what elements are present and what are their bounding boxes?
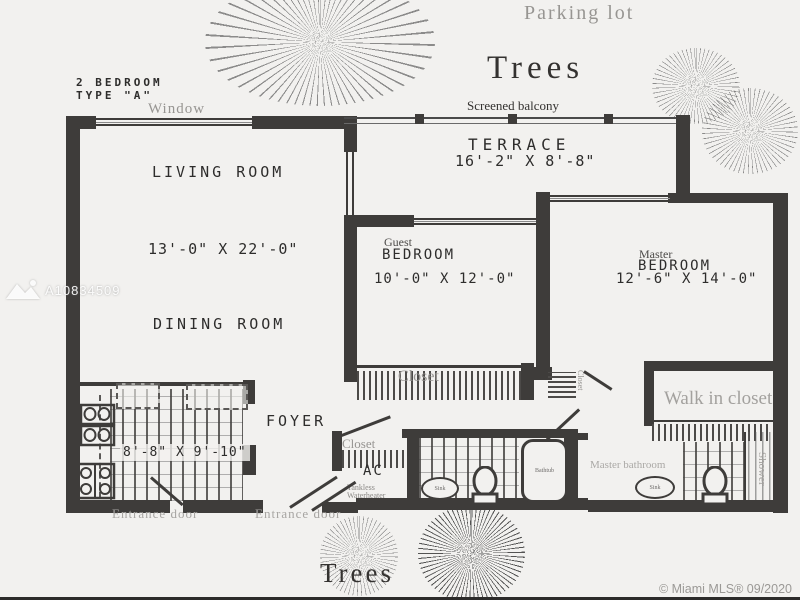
door-swing: [583, 370, 612, 390]
mls-watermark: A10834509: [4, 278, 121, 302]
rail-post: [604, 114, 613, 124]
closet-hanger-hatch: [357, 371, 521, 400]
wall: [668, 193, 788, 203]
wall: [66, 116, 96, 129]
wall: [644, 361, 775, 371]
closet-wall: [650, 420, 773, 422]
guest-bedroom-label: BEDROOM: [382, 247, 455, 263]
screened-balcony-label: Screened balcony: [467, 98, 559, 114]
kitchen-sink-icon: [75, 462, 116, 500]
terrace-dimension: 16'-2" X 8'-8": [455, 152, 595, 170]
ac-label: AC: [363, 463, 384, 479]
mls-logo-icon: [4, 278, 42, 302]
window-symbol: [550, 195, 670, 202]
wall: [644, 369, 654, 426]
shower-partition: [744, 432, 746, 500]
tree-icon: [702, 88, 798, 174]
foyer-label: FOYER: [266, 412, 326, 430]
door-swing: [338, 415, 390, 438]
window-symbol: [96, 118, 252, 126]
tree-icon: [205, 0, 435, 106]
plan-title-line2: TYPE "A": [76, 89, 153, 102]
guest-bedroom-dimension: 10'-0" X 12'-0": [374, 271, 515, 287]
bathtub-icon: Bathtub: [521, 439, 568, 503]
shower-label: Shower: [756, 452, 768, 486]
tree-icon: [418, 505, 525, 600]
sliding-door-symbol: [346, 152, 354, 218]
trees-bottom-label: Trees: [320, 558, 394, 589]
master-bedroom-dimension: 12'-6" X 14'-0": [616, 271, 757, 287]
guest-closet-label: Closet: [398, 368, 439, 386]
bathtub-label: Bathtub: [535, 468, 554, 474]
toilet-icon: [698, 466, 732, 506]
entrance-door-right-label: Entrance door: [255, 506, 341, 522]
floor-plan-page: Parking lot Trees Trees 2 BEDROOM TYPE "…: [0, 0, 800, 600]
trees-top-label: Trees: [487, 50, 584, 87]
wall: [252, 116, 346, 129]
entrance-door-left-label: Entrance door: [112, 506, 198, 522]
closet-shelves: [548, 372, 576, 398]
wall: [676, 115, 690, 198]
door-stop: [576, 433, 588, 440]
counter-cabinet: [186, 384, 248, 410]
master-bathroom-label: Master bathroom: [590, 459, 665, 471]
rail-post: [508, 114, 517, 124]
sink-icon: Sink: [421, 477, 459, 500]
watermark-id: A10834509: [45, 283, 121, 298]
wall: [66, 116, 80, 513]
sink-guest-label: Sink: [434, 486, 445, 492]
sliding-door-symbol: [414, 218, 536, 225]
counter-cabinet: [116, 383, 160, 409]
window-label: Window: [148, 101, 205, 118]
sink-master-label: Sink: [649, 485, 660, 491]
foyer-closet-label: Closet: [342, 436, 375, 452]
walk-in-closet-label: Walk in closet: [664, 388, 772, 410]
plan-title-line1: 2 BEDROOM: [76, 76, 163, 89]
wall: [773, 193, 788, 513]
closet-wall: [357, 365, 527, 368]
toilet-icon: [468, 466, 502, 506]
stove-icon: [79, 403, 116, 447]
sink-icon: Sink: [635, 476, 675, 499]
kitchen-dimension: 8'-8" X 9'-10": [120, 444, 250, 461]
closet-wall: [521, 363, 534, 400]
wall: [344, 215, 357, 382]
wall: [536, 192, 550, 380]
living-room-dimension: 13'-0" X 22'-0": [148, 240, 298, 258]
rail-post: [415, 114, 424, 124]
wall: [588, 500, 775, 512]
living-room-label: LIVING ROOM: [152, 163, 284, 181]
wall: [407, 431, 419, 501]
copyright-label: © Miami MLS® 09/2020: [659, 582, 792, 596]
parking-lot-label: Parking lot: [524, 2, 634, 25]
dining-room-label: DINING ROOM: [153, 315, 285, 333]
